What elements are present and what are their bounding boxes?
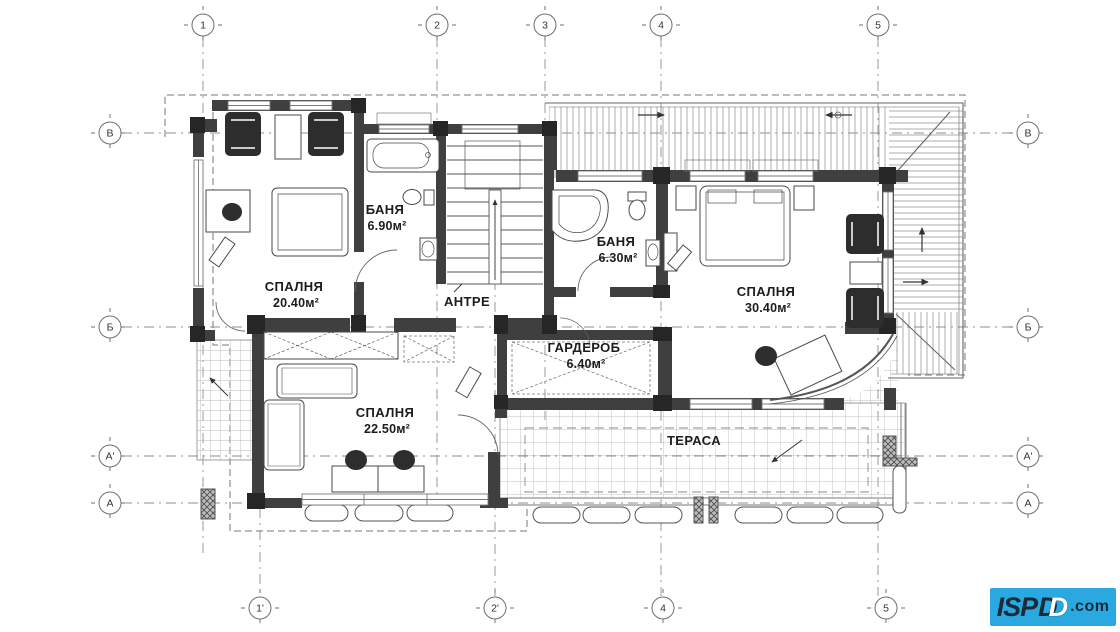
room-label-bedroom-1: СПАЛНЯ [265,279,324,294]
axis-marker-top-1: 1 [184,6,222,40]
furniture-bedroom-1 [206,112,348,267]
armchair [225,112,261,156]
svg-text:2: 2 [434,20,440,32]
bed [272,188,348,256]
bed [700,186,790,266]
axis-marker-bottom-1p: 1' [241,589,279,623]
svg-text:3: 3 [542,20,548,32]
logo-suffix-text: .com [1070,598,1109,616]
closet [264,332,398,359]
svg-text:2': 2' [491,603,499,615]
svg-text:5: 5 [875,20,881,32]
logo-brand-text: ISP [997,592,1038,623]
staircase [447,141,543,292]
svg-text:Б: Б [107,322,114,334]
armchair [308,112,344,156]
toilet-tank [424,190,434,205]
toilet [403,190,421,205]
desk-chair [755,346,777,366]
bed [277,364,357,398]
axis-marker-left-ap: А' [91,437,125,471]
mirror [209,237,235,267]
svg-text:А: А [1024,498,1031,510]
room-label-wardrobe: ГАРДЕРОБ [548,340,621,355]
logo-d-outline: D [1049,592,1069,623]
toilet [629,200,645,220]
room-area-bath-1: 6.90м² [368,219,407,233]
chair [345,450,367,470]
axis-marker-right-ap: А' [1009,437,1043,471]
desk-chair [222,203,242,221]
svg-text:5: 5 [883,603,889,615]
room-label-terrace: ТЕРАСА [667,433,721,448]
axis-marker-top-5: 5 [859,6,897,40]
bed [264,400,304,470]
svg-text:В: В [106,128,113,140]
roof-deck-right-hatch [894,178,963,312]
railing-post [709,497,718,523]
left-terrace [197,340,255,460]
side-table [275,115,301,159]
axis-marker-top-4: 4 [642,6,680,40]
railing-post [694,497,703,523]
room-area-bath-2: 6.30м² [599,251,638,265]
axis-marker-right-b: Б [1009,308,1043,342]
svg-text:А': А' [105,451,114,463]
fixtures-bath-1 [367,139,439,260]
room-label-bedroom-3: СПАЛНЯ [356,405,415,420]
axis-marker-top-3: 3 [526,6,564,40]
svg-text:1: 1 [200,20,206,32]
axis-marker-left-b: Б [91,308,125,342]
room-area-bedroom-1: 20.40м² [273,296,319,310]
axis-marker-right-v: В [1009,114,1043,148]
bathtub [367,139,439,172]
bottom-terrace [500,345,906,505]
axis-marker-top-2: 2 [418,6,456,40]
floor-plan-sheet: 1 2 3 4 5 1' 2' 4 5 В Б А' А В Б А' А СП… [0,0,1120,632]
axis-marker-bottom-4: 4 [644,589,682,623]
room-label-bedroom-2: СПАЛНЯ [737,284,796,299]
nightstand [794,186,814,210]
axis-marker-left-v: В [91,114,125,148]
ispd-watermark-logo: ISPDD.com [990,588,1116,626]
room-label-bath-1: БАНЯ [366,202,405,217]
room-area-bedroom-2: 30.40м² [745,301,791,315]
wall-stub [883,458,917,466]
railing-post [201,489,215,519]
side-table [850,262,882,284]
floor-plan-drawing: 1 2 3 4 5 1' 2' 4 5 В Б А' А В Б А' А СП… [0,0,1120,632]
axis-marker-bottom-5: 5 [867,589,905,623]
axis-marker-right-a: А [1009,484,1043,518]
room-label-hall: АНТРЕ [444,294,490,309]
svg-text:4: 4 [660,603,666,615]
nightstand [676,186,696,210]
room-area-wardrobe: 6.40м² [567,357,606,371]
axis-marker-left-a: А [91,484,125,518]
chair [393,450,415,470]
svg-text:В: В [1024,128,1031,140]
svg-text:Б: Б [1025,322,1032,334]
room-area-bedroom-3: 22.50м² [364,422,410,436]
mirror [456,367,481,398]
room-label-bath-2: БАНЯ [597,234,636,249]
svg-text:1': 1' [256,603,264,615]
svg-text:А': А' [1023,451,1032,463]
svg-text:4: 4 [658,20,664,32]
svg-text:А: А [106,498,113,510]
